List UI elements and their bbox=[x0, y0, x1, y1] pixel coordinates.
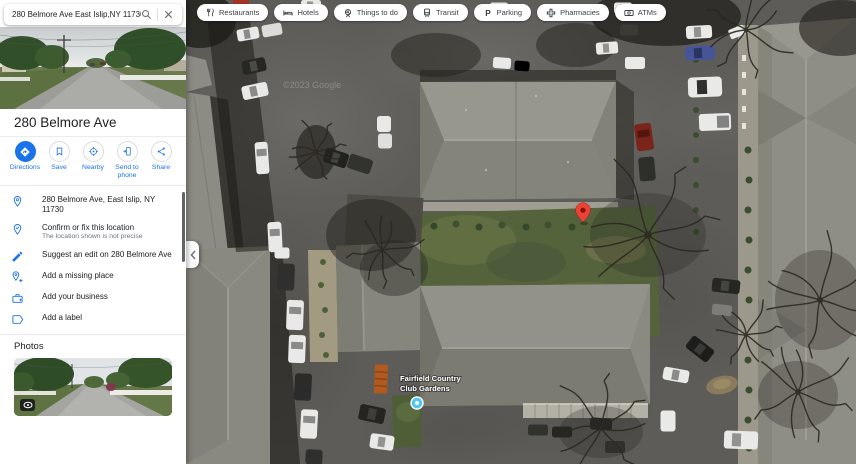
nearby-icon bbox=[83, 141, 104, 162]
chip-things-to-do[interactable]: Things to do bbox=[334, 4, 407, 21]
satellite-map[interactable]: ©2023 Google Fairfield Country Club Gard… bbox=[186, 0, 856, 464]
transit-icon bbox=[422, 8, 432, 18]
search-input[interactable] bbox=[12, 10, 141, 19]
close-icon bbox=[163, 9, 174, 20]
detail-confirm-location[interactable]: Confirm or fix this location The locatio… bbox=[0, 219, 186, 246]
business-icon bbox=[11, 292, 24, 305]
sidebar-collapse-button[interactable] bbox=[186, 241, 199, 268]
label-icon bbox=[11, 313, 24, 326]
chip-transit[interactable]: Transit bbox=[413, 4, 468, 21]
search-divider bbox=[157, 9, 158, 21]
satellite-imagery: ©2023 Google Fairfield Country Club Gard… bbox=[186, 0, 856, 464]
photo-thumbnail[interactable] bbox=[14, 358, 172, 416]
chip-restaurants[interactable]: Restaurants bbox=[197, 4, 268, 21]
place-pin-icon bbox=[11, 195, 24, 208]
directions-icon bbox=[15, 141, 36, 162]
google-maps-app: 280 Belmore Ave Directions Save Nearby bbox=[0, 0, 856, 464]
chip-hotels[interactable]: Hotels bbox=[274, 4, 327, 21]
share-button[interactable]: Share bbox=[144, 141, 178, 185]
detail-add-label[interactable]: Add a label bbox=[0, 309, 186, 330]
send-to-phone-button[interactable]: Send to phone bbox=[110, 141, 144, 185]
category-chips: Restaurants Hotels Things to do Transit … bbox=[197, 4, 666, 21]
photo-street-scene bbox=[14, 358, 172, 416]
action-bar: Directions Save Nearby Send to phone bbox=[0, 137, 186, 186]
svg-text:P: P bbox=[485, 8, 491, 18]
detail-add-business[interactable]: Add your business bbox=[0, 288, 186, 309]
chip-atms[interactable]: ATMs bbox=[615, 4, 666, 21]
add-place-icon bbox=[11, 271, 24, 284]
streetview-badge-icon bbox=[20, 399, 35, 411]
place-title: 280 Belmore Ave bbox=[14, 115, 117, 130]
save-icon bbox=[49, 141, 70, 162]
share-icon bbox=[151, 141, 172, 162]
pharmacies-icon bbox=[546, 8, 556, 18]
imagery-watermark: ©2023 Google bbox=[283, 80, 341, 90]
search-box bbox=[4, 4, 182, 25]
place-header: 280 Belmore Ave bbox=[0, 109, 186, 137]
restaurants-icon bbox=[206, 8, 215, 17]
chip-pharmacies[interactable]: Pharmacies bbox=[537, 4, 609, 21]
hotels-icon bbox=[283, 8, 293, 18]
search-area bbox=[0, 0, 186, 27]
parking-icon: P bbox=[483, 8, 493, 18]
chip-parking[interactable]: P Parking bbox=[474, 4, 531, 21]
confirm-location-icon bbox=[11, 223, 24, 236]
place-panel: 280 Belmore Ave Directions Save Nearby bbox=[0, 0, 186, 464]
search-button[interactable] bbox=[141, 9, 152, 20]
sidebar-scrollbar[interactable] bbox=[182, 192, 185, 262]
clear-search-button[interactable] bbox=[163, 9, 174, 20]
streetview-photo bbox=[0, 27, 186, 109]
photos-section: Photos bbox=[0, 335, 186, 416]
detail-address[interactable]: 280 Belmore Ave, East Islip, NY 11730 bbox=[0, 191, 186, 219]
send-to-phone-icon bbox=[117, 141, 138, 162]
detail-list: 280 Belmore Ave, East Islip, NY 11730 Co… bbox=[0, 186, 186, 335]
search-icon bbox=[141, 9, 152, 20]
pencil-icon bbox=[11, 250, 24, 263]
directions-button[interactable]: Directions bbox=[8, 141, 42, 185]
things-to-do-icon bbox=[343, 8, 353, 18]
save-button[interactable]: Save bbox=[42, 141, 76, 185]
detail-add-missing-place[interactable]: Add a missing place bbox=[0, 267, 186, 288]
chevron-left-icon bbox=[189, 249, 197, 261]
photos-heading: Photos bbox=[14, 341, 172, 352]
detail-suggest-edit[interactable]: Suggest an edit on 280 Belmore Ave bbox=[0, 246, 186, 267]
streetview-hero[interactable] bbox=[0, 27, 186, 109]
atms-icon bbox=[624, 8, 634, 18]
nearby-button[interactable]: Nearby bbox=[76, 141, 110, 185]
